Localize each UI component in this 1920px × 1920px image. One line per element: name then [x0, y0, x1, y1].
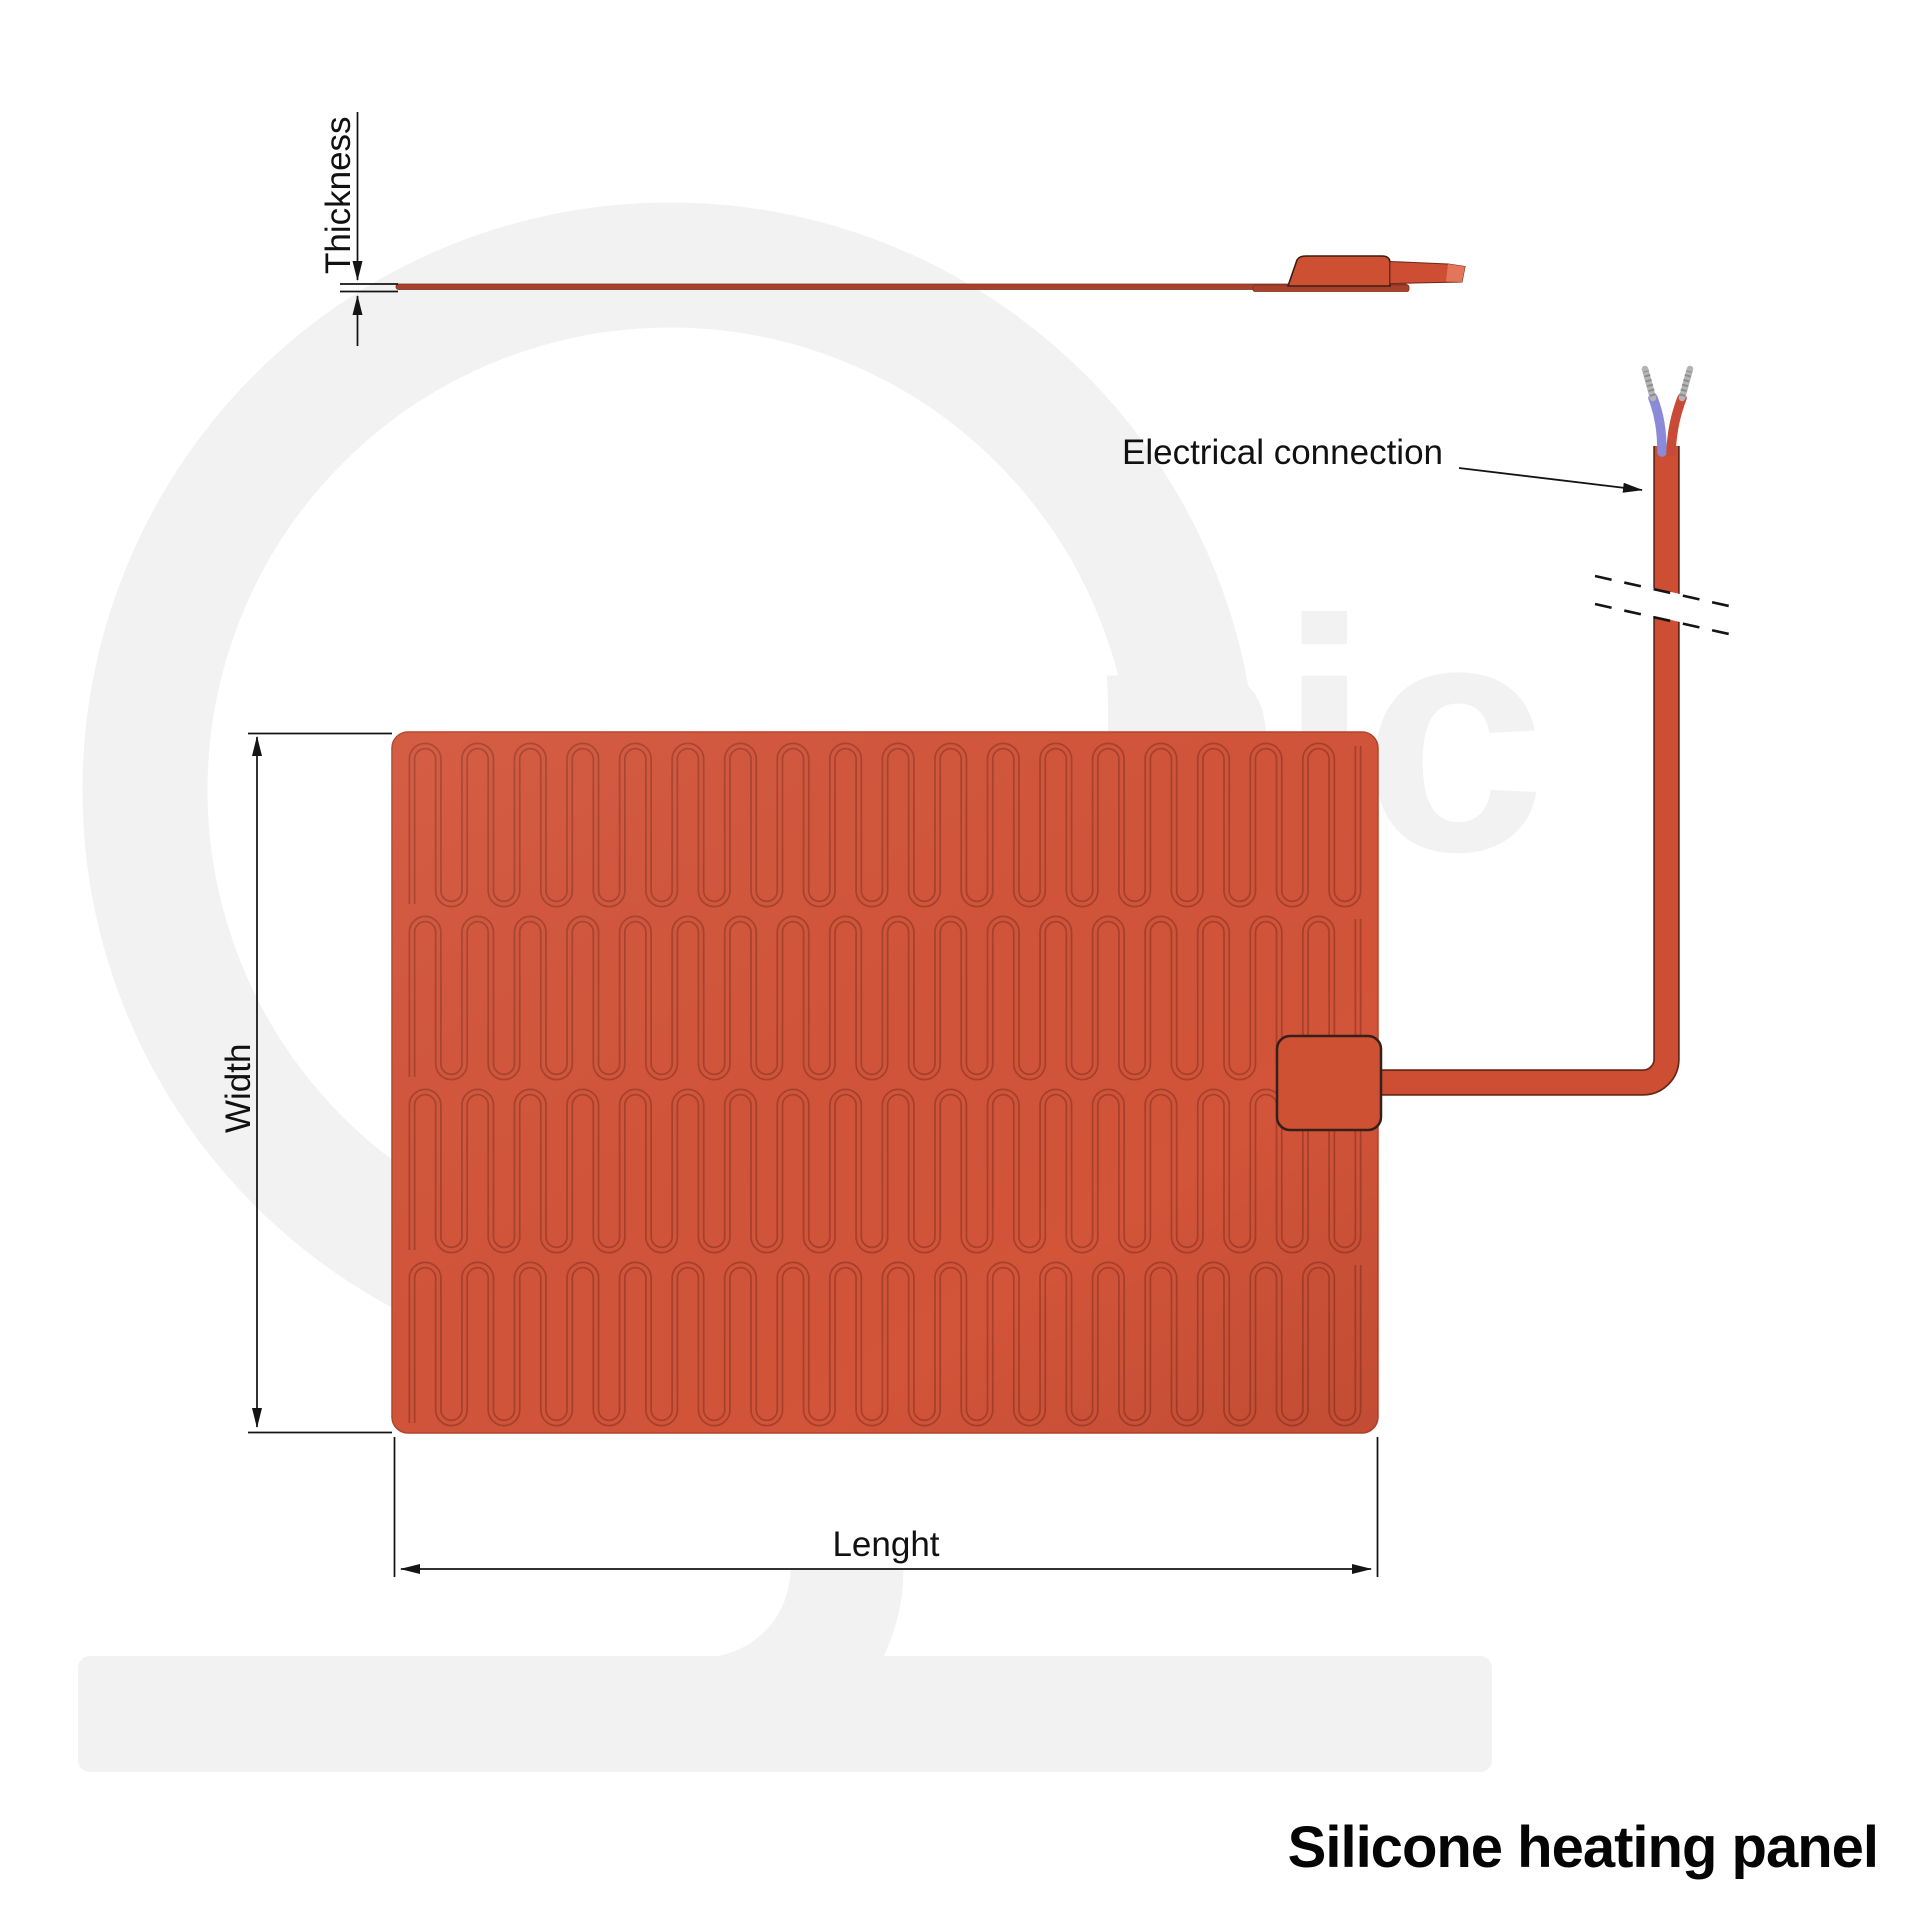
watermark-bar	[78, 1656, 1492, 1772]
wire-tip-right	[1682, 369, 1690, 398]
electrical-connection-leader	[1459, 468, 1642, 490]
panel-shading	[392, 732, 1378, 1433]
wire-blue	[1653, 398, 1662, 452]
wire-tip-left	[1645, 369, 1653, 398]
page-title: Silicone heating panel	[1288, 1815, 1878, 1880]
side-view-cable-tip	[1446, 264, 1465, 282]
diagram-svg: nic Thickness Electrical connect	[0, 0, 1920, 1920]
length-dimension: Lenght	[395, 1437, 1378, 1577]
width-label: Width	[219, 1044, 258, 1133]
electrical-connection-callout: Electrical connection	[1122, 433, 1642, 490]
thickness-label: Thickness	[319, 116, 358, 274]
wire-red	[1671, 398, 1682, 452]
connector-box	[1277, 1036, 1381, 1130]
length-label: Lenght	[832, 1525, 939, 1564]
heating-panel	[392, 732, 1381, 1433]
electrical-connection-label: Electrical connection	[1122, 433, 1443, 472]
drawing-canvas: nic Thickness Electrical connect	[0, 0, 1920, 1920]
side-view-connector-bump	[1288, 256, 1390, 286]
